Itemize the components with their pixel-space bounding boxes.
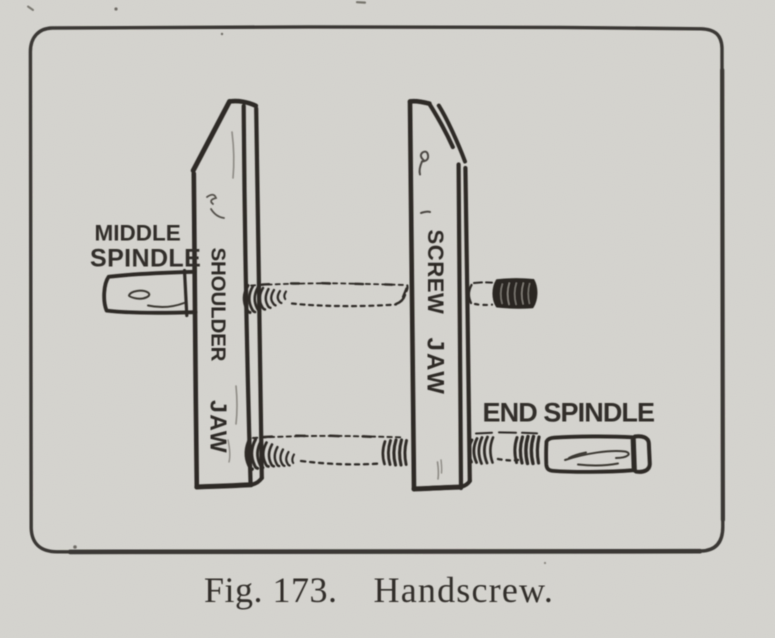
- svg-text:SPINDLE: SPINDLE: [90, 245, 201, 273]
- svg-text:Fig. 173.: Fig. 173.: [204, 570, 338, 610]
- svg-text:Handscrew.: Handscrew.: [374, 570, 555, 610]
- svg-text:SHOULDER: SHOULDER: [207, 248, 230, 362]
- svg-text:JAW: JAW: [422, 338, 449, 397]
- svg-text:SCREW: SCREW: [423, 230, 448, 315]
- svg-text:MIDDLE: MIDDLE: [95, 221, 181, 246]
- svg-text:JAW: JAW: [206, 400, 232, 454]
- svg-text:END SPINDLE: END SPINDLE: [483, 398, 655, 428]
